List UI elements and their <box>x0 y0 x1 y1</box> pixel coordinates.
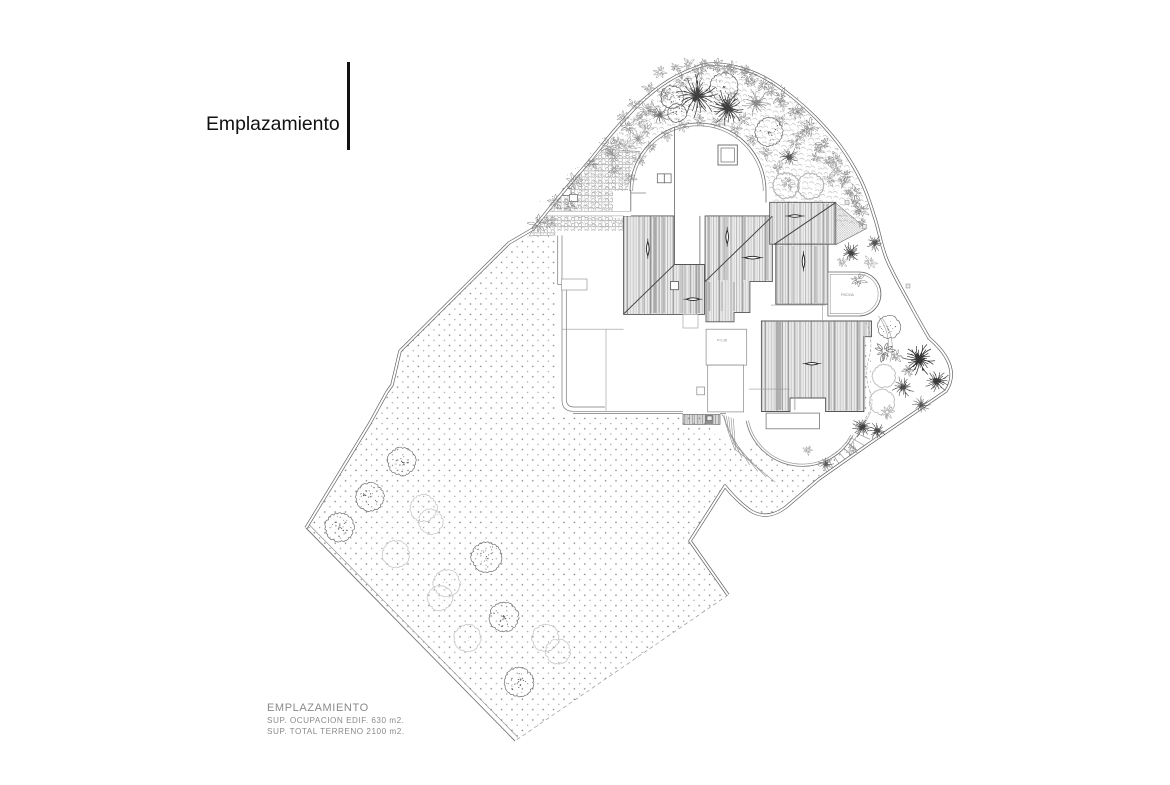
svg-text:Emplazamiento: Emplazamiento <box>206 113 340 135</box>
svg-text:SUP. OCUPACION EDIF. 630 m: SUP. OCUPACION EDIF. 630 m2. <box>267 716 404 725</box>
svg-text:SUP. TOTAL TERRENO 2100 m2: SUP. TOTAL TERRENO 2100 m2. <box>267 727 405 736</box>
svg-text:P=1.90: P=1.90 <box>717 339 727 343</box>
svg-text:EMPLAZAMIENTO: EMPLAZAMIENTO <box>267 702 369 714</box>
svg-text:PISCINA: PISCINA <box>841 293 855 297</box>
